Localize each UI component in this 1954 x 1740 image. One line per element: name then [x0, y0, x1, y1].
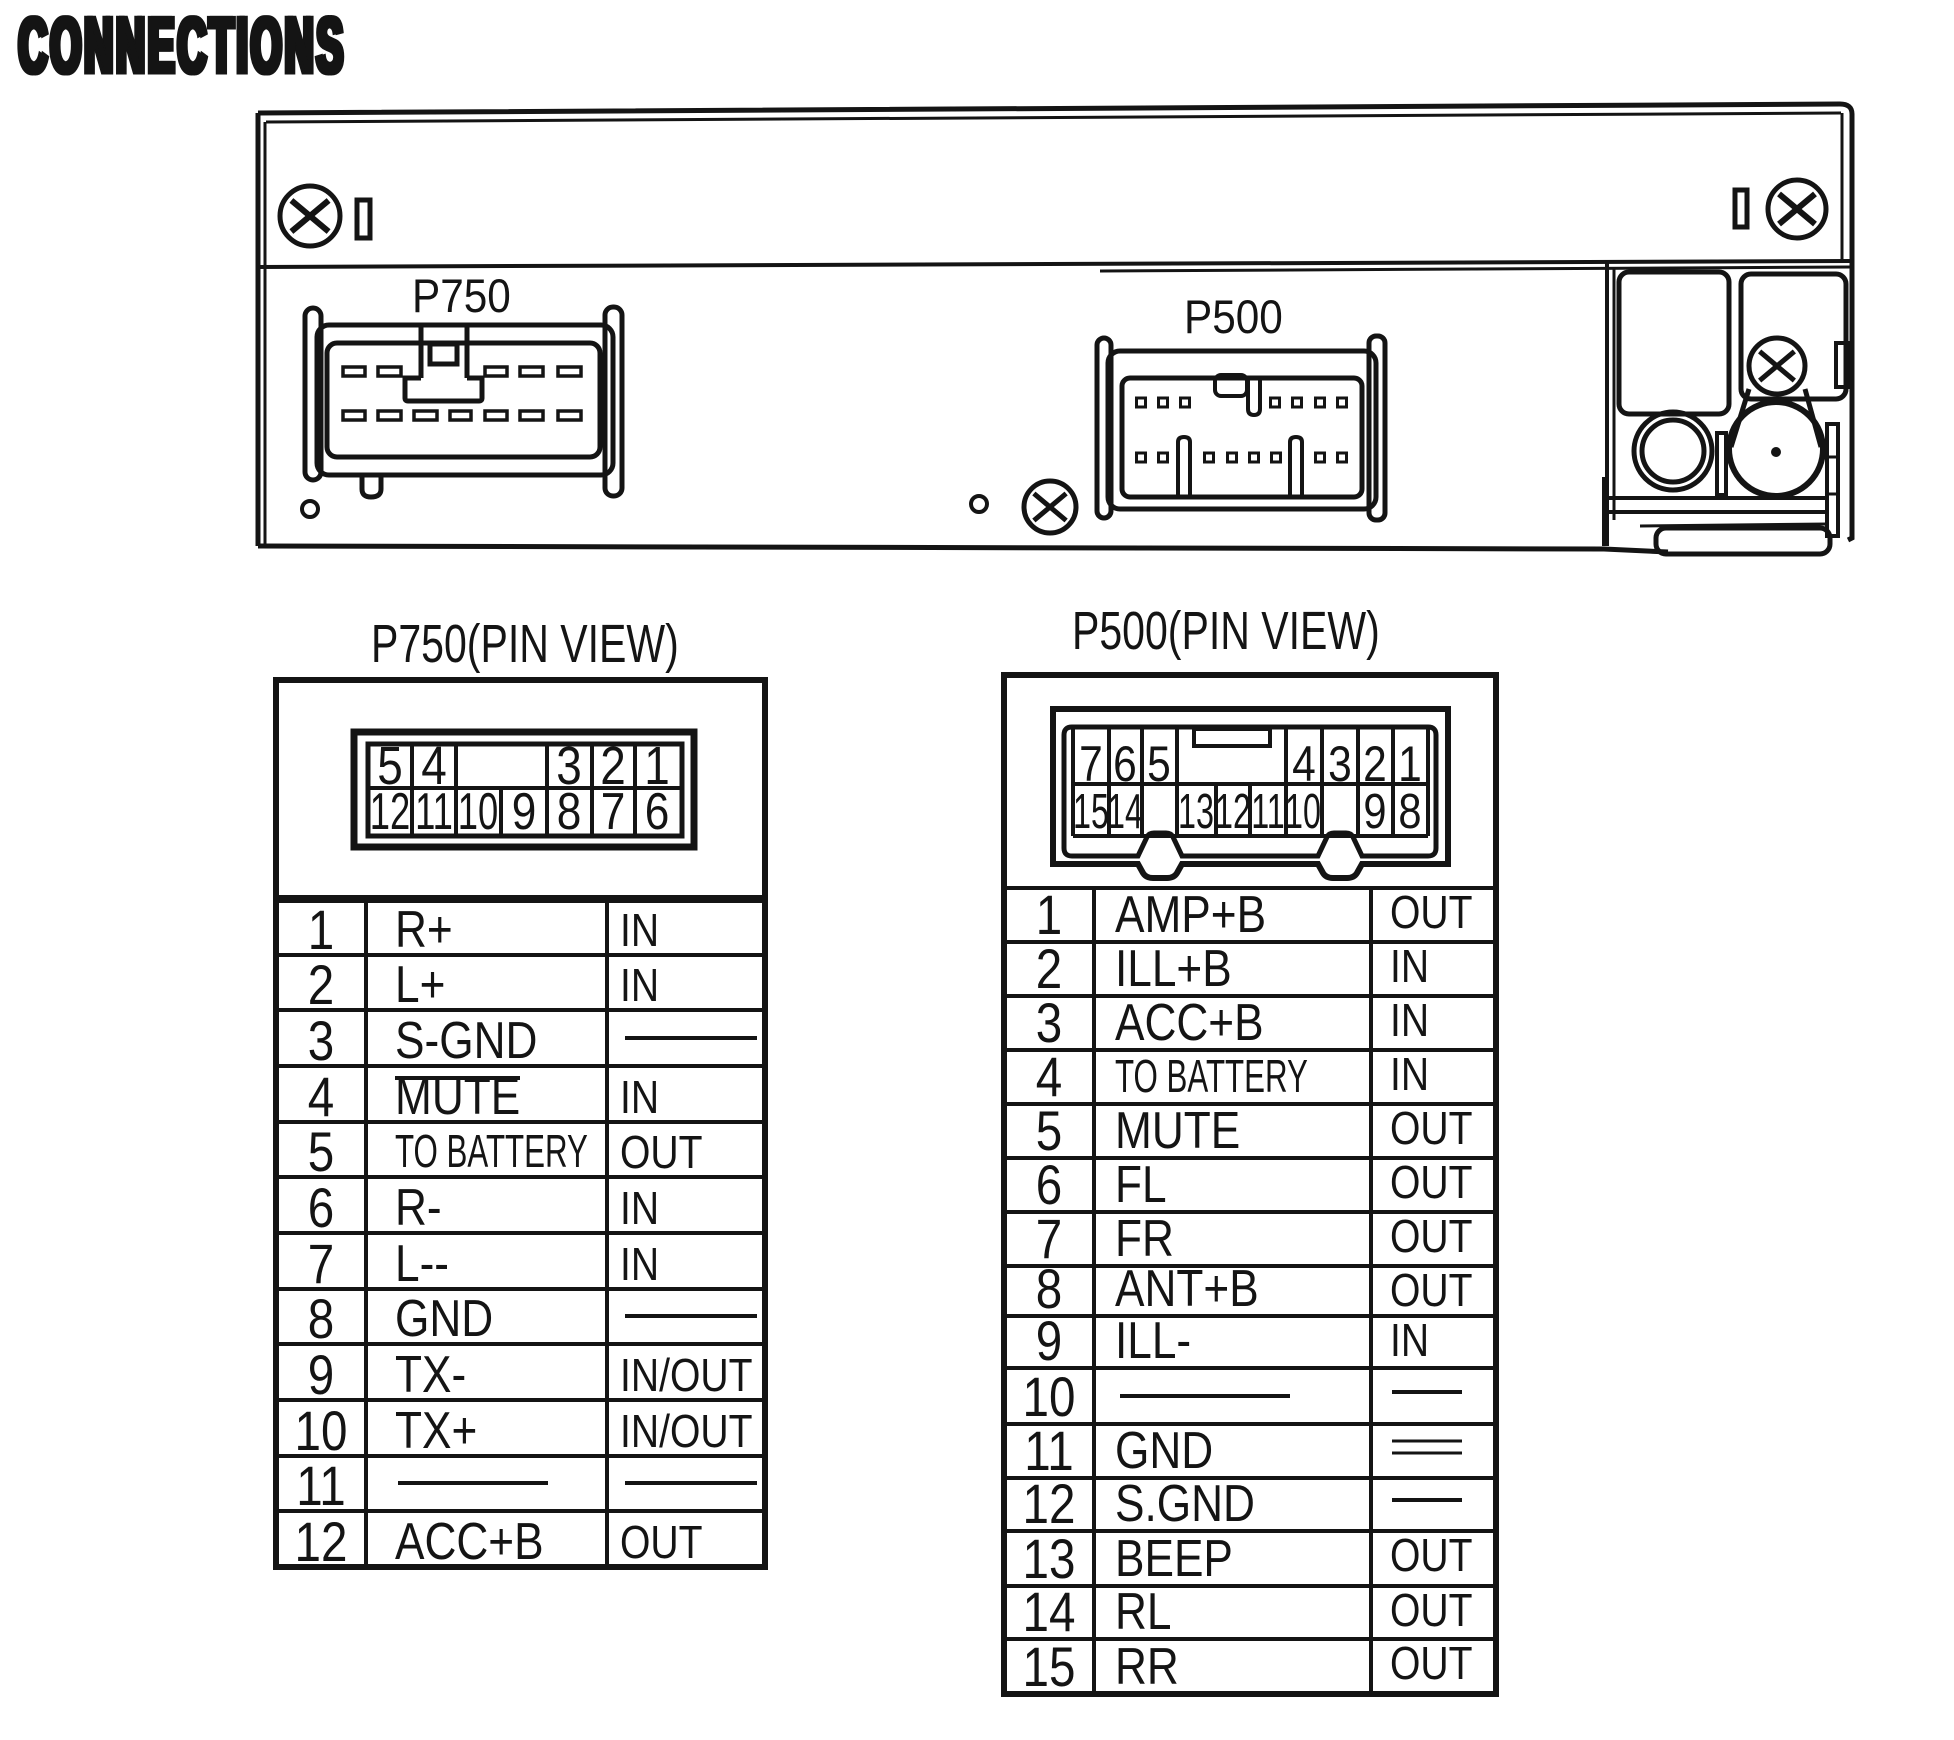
- svg-text:ANT+B: ANT+B: [1115, 1260, 1259, 1318]
- svg-text:3: 3: [308, 1010, 334, 1072]
- svg-text:9: 9: [512, 783, 537, 841]
- svg-text:RL: RL: [1115, 1583, 1172, 1641]
- svg-text:TX-: TX-: [395, 1346, 466, 1404]
- svg-text:3: 3: [1328, 736, 1352, 792]
- svg-text:5: 5: [1147, 736, 1171, 792]
- svg-text:OUT: OUT: [1390, 1638, 1473, 1690]
- svg-text:1: 1: [308, 899, 334, 961]
- svg-text:10: 10: [458, 781, 498, 840]
- svg-text:12: 12: [370, 781, 410, 840]
- svg-text:IN: IN: [1390, 941, 1429, 993]
- svg-text:ACC+B: ACC+B: [1115, 994, 1264, 1052]
- svg-text:15: 15: [1023, 1636, 1076, 1698]
- svg-text:12: 12: [1215, 783, 1251, 838]
- svg-text:11: 11: [296, 1455, 345, 1517]
- svg-text:TX+: TX+: [395, 1402, 477, 1460]
- svg-text:CONNECTIONS: CONNECTIONS: [20, 3, 348, 90]
- svg-text:4: 4: [308, 1066, 334, 1128]
- svg-text:15: 15: [1073, 783, 1109, 838]
- svg-text:R-: R-: [395, 1179, 442, 1237]
- svg-text:S-GND: S-GND: [395, 1012, 537, 1070]
- svg-text:IN: IN: [620, 1183, 659, 1235]
- svg-text:ACC+B: ACC+B: [395, 1513, 544, 1571]
- svg-text:TO BATTERY: TO BATTERY: [395, 1126, 588, 1177]
- svg-text:11: 11: [415, 781, 453, 840]
- svg-text:8: 8: [557, 783, 582, 841]
- svg-text:5: 5: [308, 1121, 334, 1183]
- svg-text:9: 9: [1363, 784, 1386, 839]
- svg-text:OUT: OUT: [1390, 1265, 1473, 1317]
- svg-text:OUT: OUT: [1390, 1530, 1473, 1582]
- svg-text:P750: P750: [412, 271, 511, 323]
- svg-text:IN: IN: [620, 1072, 659, 1124]
- svg-text:13: 13: [1178, 783, 1214, 838]
- svg-text:IN: IN: [1390, 1315, 1429, 1367]
- svg-text:GND: GND: [395, 1290, 493, 1348]
- svg-text:12: 12: [1023, 1473, 1076, 1535]
- svg-text:ILL+B: ILL+B: [1115, 940, 1232, 998]
- svg-text:P500: P500: [1184, 292, 1283, 344]
- svg-text:GND: GND: [1115, 1422, 1213, 1480]
- svg-text:AMP+B: AMP+B: [1115, 886, 1266, 944]
- svg-text:9: 9: [1036, 1310, 1062, 1372]
- svg-text:7: 7: [308, 1233, 334, 1295]
- svg-text:6: 6: [308, 1177, 334, 1239]
- svg-text:L+: L+: [395, 956, 445, 1014]
- svg-text:11: 11: [1251, 783, 1285, 838]
- svg-text:14: 14: [1107, 783, 1143, 838]
- svg-text:BEEP: BEEP: [1115, 1530, 1233, 1588]
- svg-text:10: 10: [295, 1400, 348, 1462]
- svg-text:IN/OUT: IN/OUT: [620, 1406, 752, 1458]
- svg-text:MUTE: MUTE: [1115, 1102, 1240, 1160]
- svg-text:9: 9: [308, 1344, 334, 1406]
- svg-text:IN: IN: [1390, 995, 1429, 1047]
- svg-text:14: 14: [1023, 1581, 1076, 1643]
- svg-text:2: 2: [308, 954, 334, 1016]
- svg-text:P500(PIN VIEW): P500(PIN VIEW): [1072, 602, 1380, 662]
- svg-text:OUT: OUT: [1390, 887, 1473, 939]
- svg-text:ILL-: ILL-: [1115, 1312, 1191, 1370]
- svg-text:OUT: OUT: [1390, 1211, 1473, 1263]
- svg-text:12: 12: [295, 1511, 348, 1573]
- svg-text:OUT: OUT: [620, 1127, 703, 1179]
- svg-text:TO BATTERY: TO BATTERY: [1115, 1051, 1308, 1102]
- svg-text:IN: IN: [620, 905, 659, 957]
- svg-text:10: 10: [1285, 783, 1321, 838]
- svg-text:OUT: OUT: [1390, 1585, 1473, 1637]
- svg-text:IN/OUT: IN/OUT: [620, 1350, 752, 1402]
- svg-text:IN: IN: [620, 1239, 659, 1291]
- svg-text:FL: FL: [1115, 1156, 1167, 1214]
- svg-text:OUT: OUT: [620, 1517, 703, 1569]
- svg-text:7: 7: [601, 783, 626, 841]
- svg-text:P750(PIN VIEW): P750(PIN VIEW): [371, 615, 679, 675]
- svg-text:RR: RR: [1115, 1638, 1179, 1696]
- svg-text:S.GND: S.GND: [1115, 1475, 1255, 1533]
- svg-text:IN: IN: [1390, 1049, 1429, 1101]
- svg-text:8: 8: [1398, 784, 1421, 839]
- svg-text:R+: R+: [395, 901, 453, 959]
- svg-text:IN: IN: [620, 960, 659, 1012]
- svg-text:OUT: OUT: [1390, 1103, 1473, 1155]
- svg-text:8: 8: [308, 1288, 334, 1350]
- svg-text:6: 6: [645, 783, 670, 841]
- svg-text:L--: L--: [395, 1235, 449, 1293]
- svg-text:OUT: OUT: [1390, 1157, 1473, 1209]
